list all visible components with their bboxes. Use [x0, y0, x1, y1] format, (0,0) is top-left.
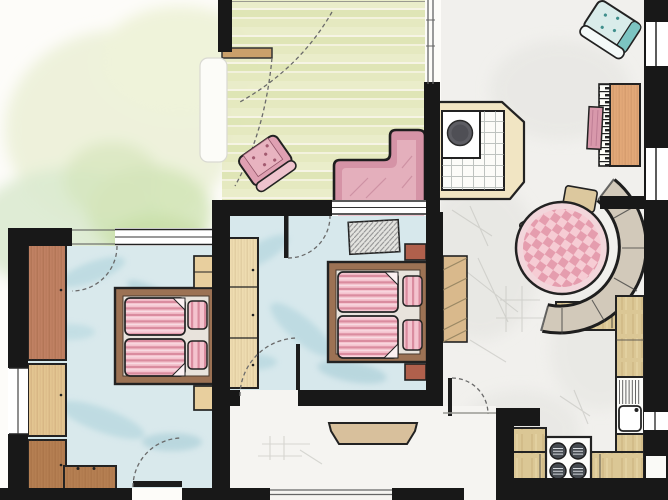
- door-leaf: [133, 481, 182, 487]
- wall-stub-terrace: [218, 0, 232, 52]
- wall-bedroom-living: [426, 212, 443, 392]
- wardrobes-left-bedroom: [28, 244, 66, 498]
- window-right-3: [644, 412, 668, 430]
- faucet-icon: [635, 408, 639, 412]
- nightstand: [405, 364, 426, 380]
- pillow: [188, 341, 207, 369]
- hatched-rug: [348, 220, 400, 255]
- tiled-stove: [436, 102, 524, 199]
- hall-coat-shelf: [329, 423, 417, 444]
- wall-bottom-kitchen: [496, 478, 668, 500]
- wall-bottom-hall: [392, 488, 464, 500]
- duvet: [338, 272, 398, 312]
- piano: [599, 84, 640, 166]
- door-opening: [240, 390, 298, 406]
- nightstand: [405, 244, 426, 260]
- wall-recess: [646, 456, 666, 478]
- pillow: [403, 320, 422, 350]
- window-left-wall: [8, 368, 28, 434]
- door-leaf: [448, 378, 452, 416]
- wall-left: [8, 228, 28, 500]
- door-leaf: [296, 344, 300, 390]
- wall-bottom-center: [182, 488, 270, 500]
- terrace-curtain: [200, 58, 227, 162]
- wall-stub-dining: [600, 196, 646, 209]
- double-bed-middle: [328, 244, 427, 380]
- pillow: [403, 276, 422, 306]
- wall-terrace-living: [424, 82, 440, 212]
- wardrobe-middle-bedroom: [228, 238, 258, 388]
- wall-bedroom-middle-top: [212, 200, 330, 216]
- wall-bottom-left: [0, 488, 132, 500]
- window-right-2: [646, 148, 668, 200]
- window-right-1: [646, 22, 668, 66]
- duvet: [125, 339, 185, 376]
- window-bedroom-left: [115, 228, 212, 246]
- double-bed-left: [115, 288, 217, 384]
- duvet: [125, 298, 185, 335]
- duvet: [338, 316, 398, 358]
- hall-floor: [212, 406, 496, 500]
- floor-plan: [0, 0, 668, 500]
- pillow: [188, 301, 207, 329]
- piano-bench: [587, 107, 603, 150]
- wall-bedrooms-divider: [212, 216, 230, 500]
- door-leaf: [284, 216, 289, 258]
- kitchen-sink: [616, 377, 644, 434]
- window-bedroom-middle: [324, 200, 426, 216]
- living-cabinet-hatched: [443, 256, 467, 342]
- dining-tablecloth: [523, 209, 601, 287]
